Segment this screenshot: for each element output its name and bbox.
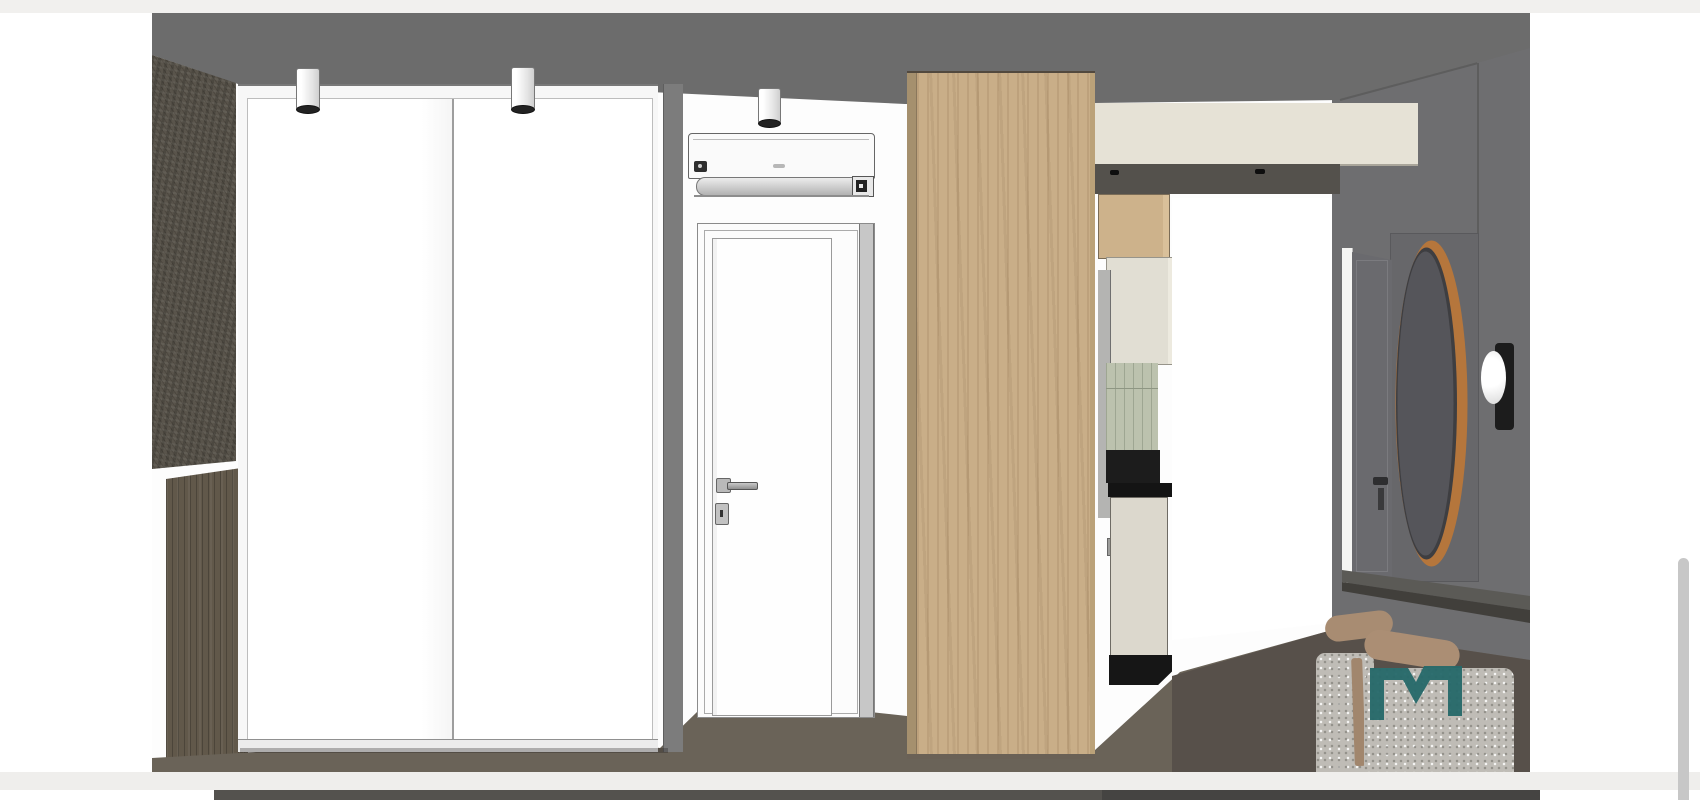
wall-sconce xyxy=(1481,343,1515,431)
spotlight-cap xyxy=(296,105,320,114)
mirror-glass xyxy=(1398,252,1454,556)
unit-plinth xyxy=(1109,655,1172,685)
ac-logo-badge xyxy=(694,161,707,172)
ac-brand-mark xyxy=(773,164,785,168)
render-image xyxy=(152,13,1530,772)
page-top-margin xyxy=(0,0,1700,13)
hallway-door xyxy=(1352,248,1392,578)
next-image-top-edge xyxy=(214,790,1540,800)
next-image-segment-right xyxy=(1102,790,1540,800)
bright-wall xyxy=(1172,198,1332,660)
wood-panel-edge-right xyxy=(1090,73,1095,759)
m-logo-watermark xyxy=(1370,662,1462,720)
tile-seam xyxy=(1106,388,1158,389)
hall-door-handle xyxy=(1373,477,1388,485)
next-image-segment-left xyxy=(214,790,1102,800)
hallway-door-jamb xyxy=(1342,248,1353,583)
door-handle-lever xyxy=(727,482,758,490)
door-keyhole xyxy=(715,503,729,525)
spotlight-3 xyxy=(758,88,781,126)
kitchen-soffit xyxy=(1095,164,1340,194)
spotlight-2 xyxy=(511,67,535,112)
wall-mirror xyxy=(1395,240,1468,567)
keyhole-slot xyxy=(720,510,723,517)
wardrobe-door-divider xyxy=(452,99,454,739)
wardrobe-side-panel xyxy=(663,84,683,752)
tall-kitchen-unit xyxy=(1108,483,1174,685)
hall-door-panel xyxy=(1356,260,1388,572)
interior-door xyxy=(697,223,875,718)
spotlight-cap xyxy=(511,105,535,114)
recessed-light-icon xyxy=(1255,169,1265,174)
wardrobe-doors xyxy=(248,99,652,739)
sconce-light xyxy=(1481,351,1506,404)
ac-display-dot xyxy=(859,184,863,188)
cabinet-edge xyxy=(1163,195,1169,258)
ac-top-line xyxy=(693,139,869,140)
ac-shadow-line xyxy=(694,195,869,197)
wardrobe-door-left xyxy=(248,99,452,739)
wall-corner-seam xyxy=(1477,63,1479,235)
door-jamb xyxy=(859,224,874,717)
hall-door-lock xyxy=(1378,488,1384,510)
cooktop-counter xyxy=(1106,450,1160,483)
air-conditioner xyxy=(688,133,875,197)
wood-panel-edge xyxy=(907,73,917,759)
door-slab xyxy=(712,238,832,716)
upper-cabinet-cream xyxy=(1106,257,1174,365)
spotlight-cap xyxy=(758,119,781,128)
wardrobe xyxy=(238,84,658,752)
scrollbar-thumb[interactable] xyxy=(1678,558,1689,800)
ac-vent xyxy=(696,177,858,196)
wood-panel-base xyxy=(907,754,1095,759)
page-bottom-gap xyxy=(0,772,1700,790)
recessed-light-icon xyxy=(1110,170,1119,175)
ac-end-cap xyxy=(852,176,874,197)
backsplash-tiles xyxy=(1106,363,1158,450)
ac-body xyxy=(688,133,875,179)
m-logo-glyph xyxy=(1370,666,1462,720)
upper-cabinet-wood xyxy=(1098,194,1170,259)
ac-display xyxy=(856,180,867,192)
unit-top-band xyxy=(1108,483,1172,497)
dark-wood-cabinet xyxy=(166,465,248,767)
wood-panel xyxy=(907,71,1095,759)
wardrobe-floor-shadow xyxy=(240,748,668,753)
spotlight-1 xyxy=(296,68,320,112)
unit-front xyxy=(1110,497,1168,657)
ac-logo-dot xyxy=(698,164,702,168)
kitchen-bulkhead xyxy=(1095,103,1418,166)
